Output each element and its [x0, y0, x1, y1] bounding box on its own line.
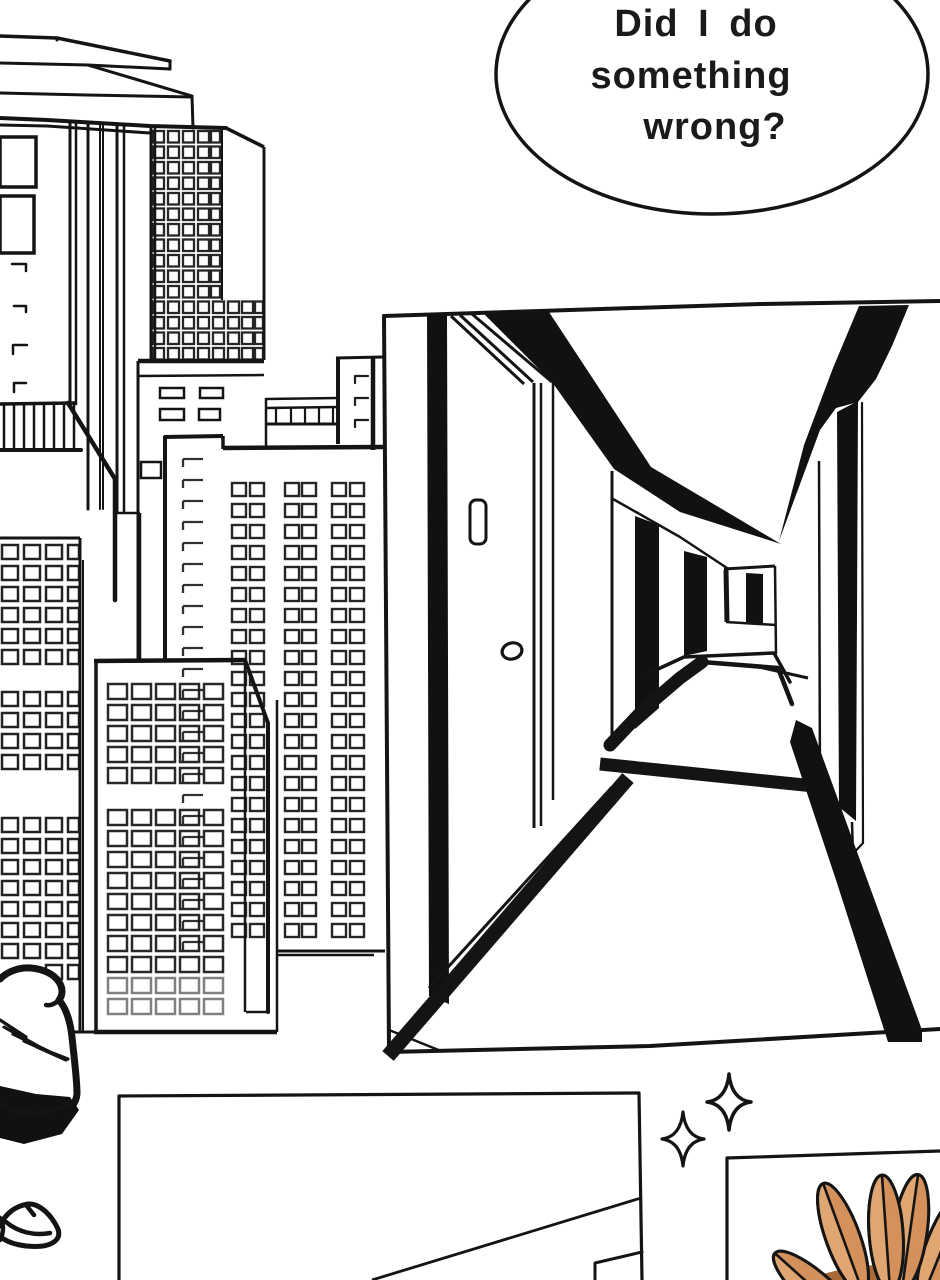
svg-text:Did I do: Did I do: [614, 3, 777, 45]
svg-text:something: something: [590, 55, 791, 97]
svg-text:wrong?: wrong?: [642, 106, 786, 148]
